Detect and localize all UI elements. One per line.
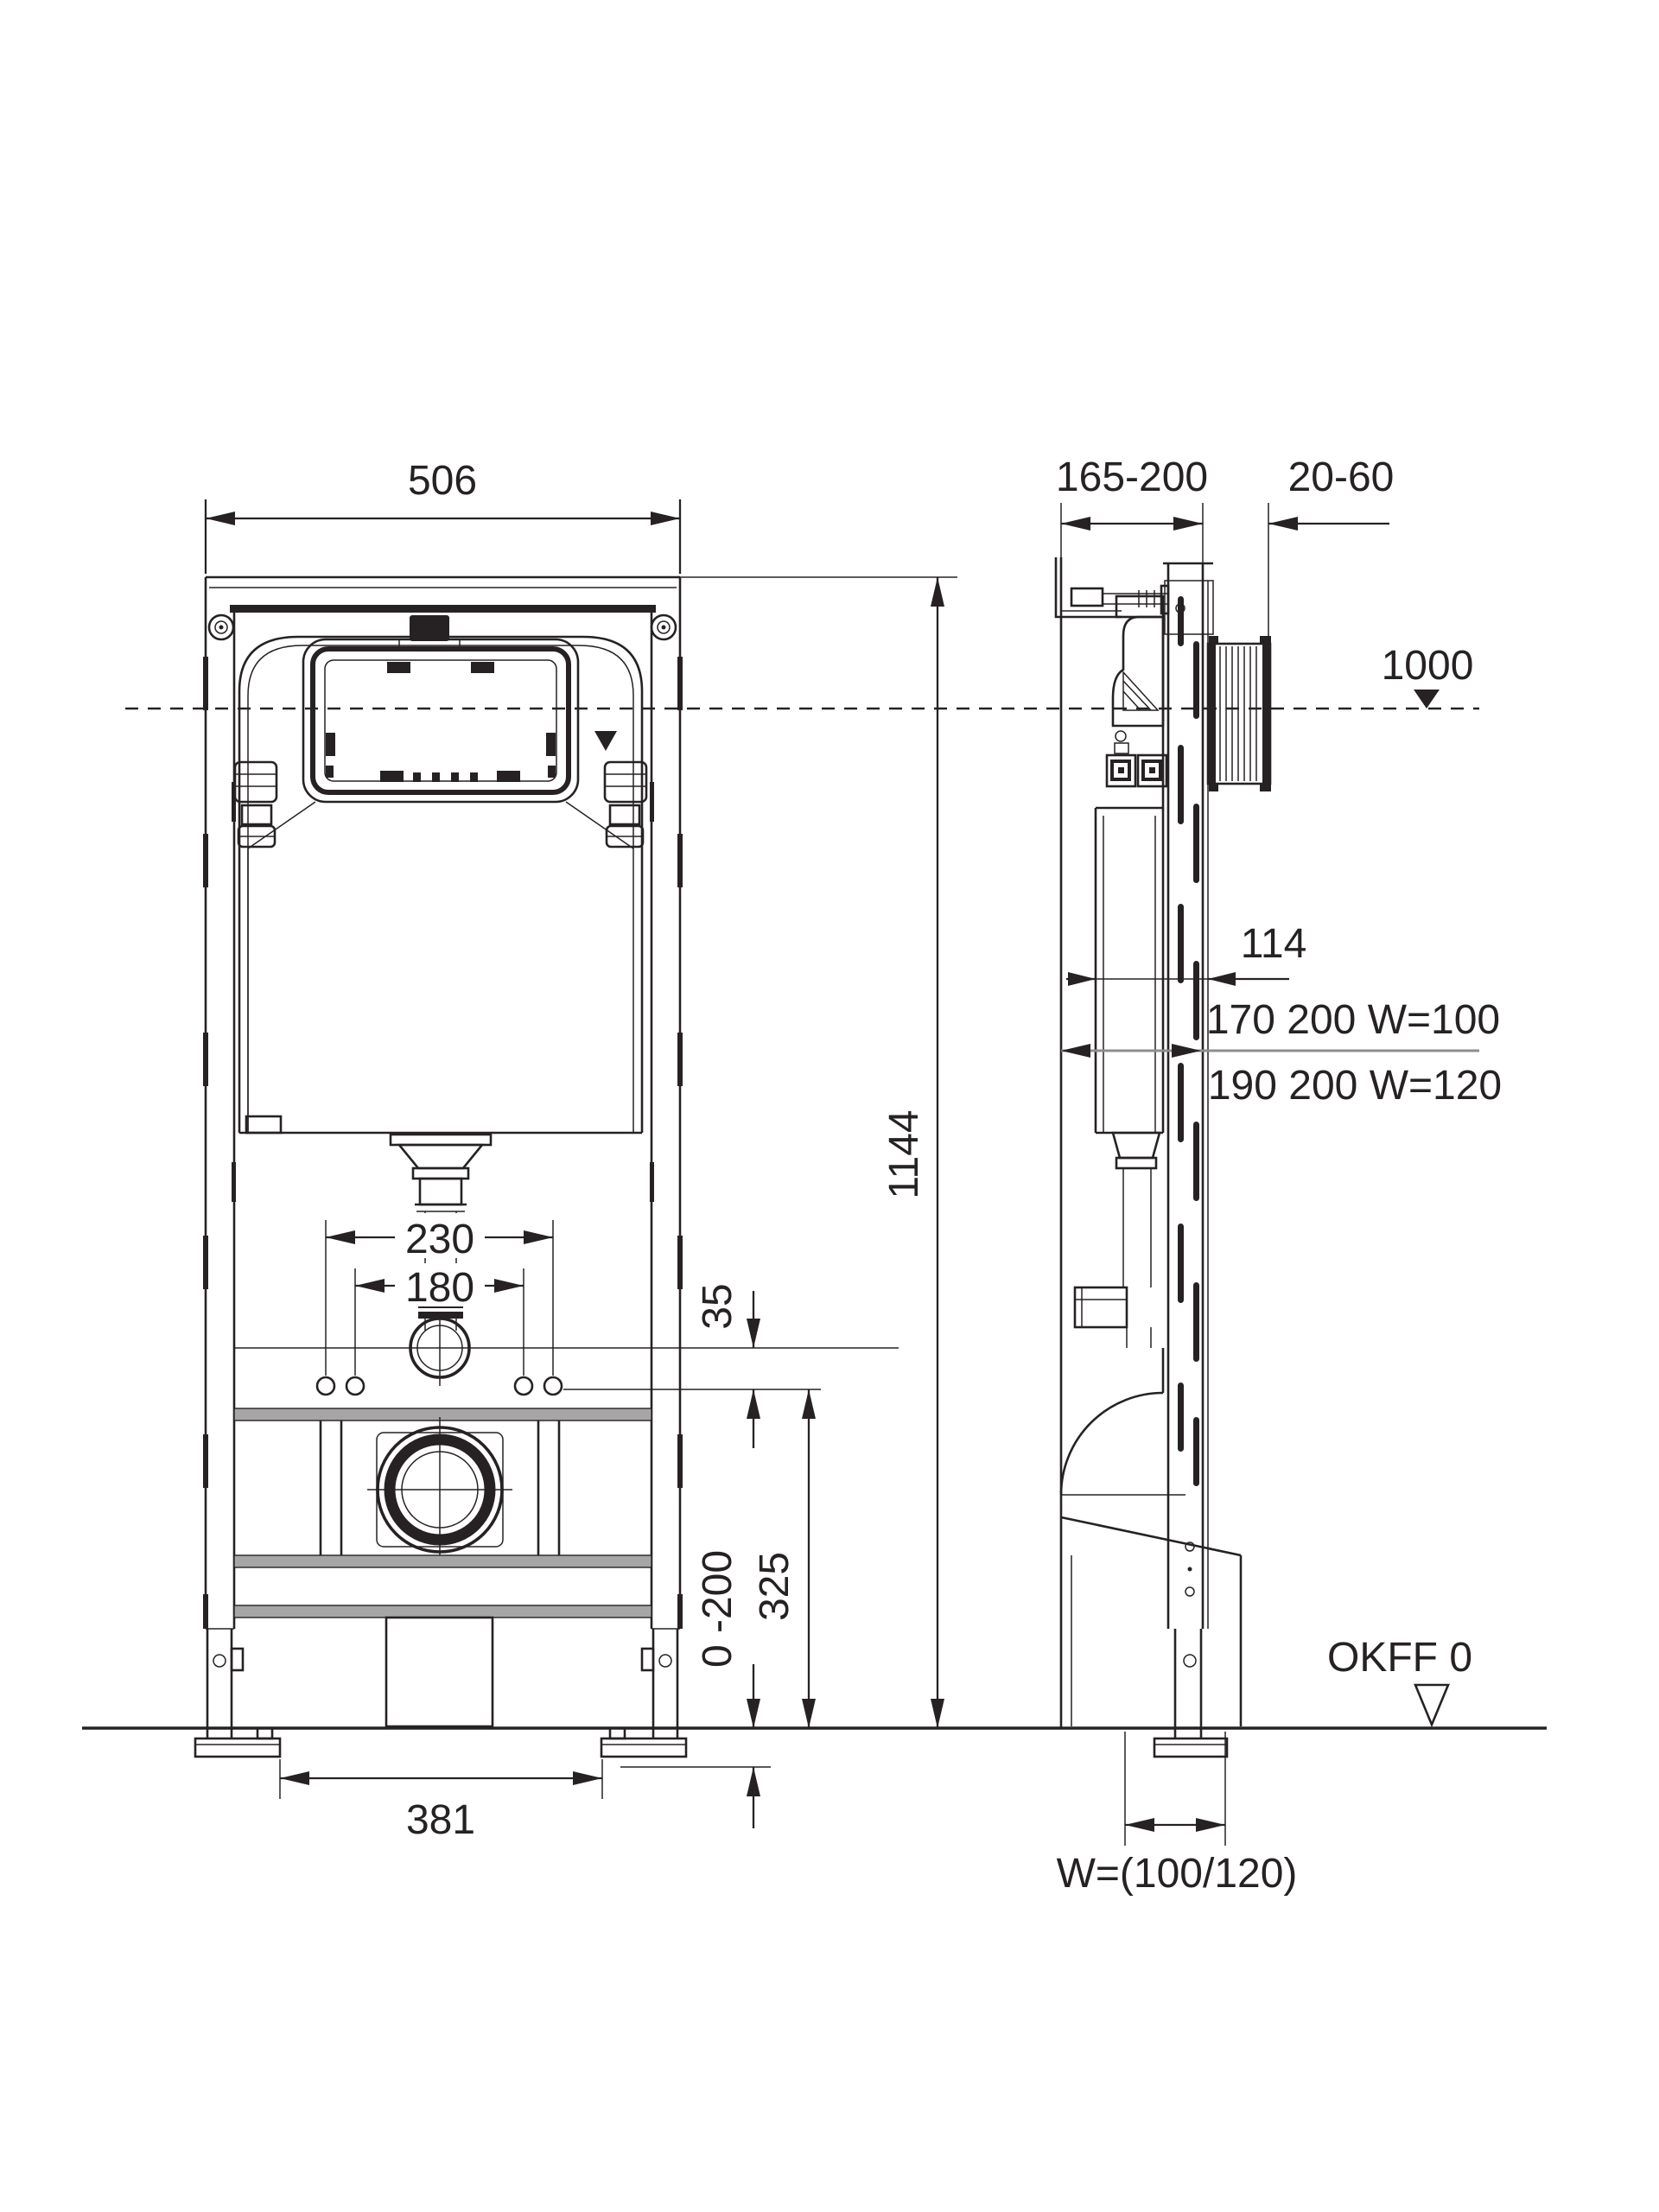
dim-overall-width: 506 — [206, 458, 680, 574]
dim-label-1000: 1000 — [1382, 643, 1474, 689]
side-rail — [1154, 563, 1227, 1757]
cistern-front — [235, 615, 646, 1133]
drain-socket — [367, 1417, 512, 1562]
foot-plate — [601, 1738, 686, 1757]
actuator-protection-box — [1208, 636, 1271, 791]
dim-label-381: 381 — [406, 1797, 475, 1843]
dim-frame-depth: 165-200 — [1056, 454, 1208, 577]
side-view — [1056, 557, 1271, 1757]
dim-label-0-200: 0 -200 — [695, 1550, 741, 1668]
rail-lower — [234, 1555, 652, 1567]
dim-label-1144: 1144 — [881, 1109, 927, 1198]
flush-frame-tab — [410, 615, 449, 641]
dim-label-180: 180 — [405, 1265, 474, 1311]
cistern-step — [246, 1116, 281, 1133]
dim-cistern-clearance: 114 — [1066, 921, 1306, 986]
level-marker-triangle — [594, 731, 617, 751]
dim-supply-heights: 170 200 W=100 190 200 W=120 — [1061, 997, 1502, 1109]
dim-wall-finish: 20-60 — [1268, 454, 1394, 641]
technical-drawing: 506 1144 230 180 35 — [0, 0, 1659, 2212]
bottom-crossbar — [234, 1605, 652, 1618]
clamp-left — [235, 762, 276, 847]
foot-tab — [257, 1728, 272, 1738]
dim-rail-offset: 35 — [695, 1283, 760, 1448]
dim-label-190-200-w120: 190 200 W=120 — [1208, 1063, 1502, 1109]
dim-label-325: 325 — [752, 1552, 798, 1621]
dim-label-w-100-120: W=(100/120) — [1057, 1851, 1298, 1897]
dim-feet-spacing: 381 — [280, 1759, 602, 1843]
lower-mounting-area — [234, 1348, 899, 1726]
floor-level-triangle — [1415, 1685, 1448, 1725]
dim-label-506: 506 — [408, 458, 477, 504]
dim-label-35: 35 — [695, 1283, 741, 1329]
dim-label-114: 114 — [1241, 921, 1307, 967]
dim-floor-adjust: 0 -200 — [620, 1550, 771, 1828]
dim-label-230: 230 — [405, 1217, 474, 1262]
flush-frame-ticks — [326, 662, 556, 782]
dim-label-20-60: 20-60 — [1288, 454, 1395, 500]
wall-bracket — [1056, 557, 1168, 617]
corner-screw-right — [652, 615, 676, 639]
rail-upper — [234, 1408, 652, 1421]
dim-label-165-200: 165-200 — [1056, 454, 1208, 500]
drawing-page: 506 1144 230 180 35 — [0, 0, 1659, 2212]
foot-tab — [610, 1728, 625, 1738]
label-okff0: OKFF 0 — [1327, 1635, 1472, 1681]
top-crossbar-band — [230, 605, 656, 613]
side-foot-plate — [1154, 1738, 1227, 1757]
right-leg — [601, 1629, 686, 1757]
frame — [195, 577, 686, 1757]
foot-plate — [195, 1738, 280, 1757]
dim-drain-height: 325 — [752, 1389, 816, 1728]
side-rail-slots — [1178, 596, 1199, 1486]
floor-level-marker: OKFF 0 — [1327, 1635, 1472, 1725]
dim-actuation-height: 1000 — [1382, 643, 1474, 709]
supply-connection-blocks — [1107, 755, 1166, 786]
left-leg — [195, 1629, 280, 1757]
corner-screw-left — [209, 615, 233, 639]
inspection-box — [386, 1618, 493, 1726]
clamp-right — [605, 762, 646, 847]
level-arrow — [1414, 690, 1440, 709]
dim-label-170-200-w100: 170 200 W=100 — [1206, 997, 1500, 1043]
